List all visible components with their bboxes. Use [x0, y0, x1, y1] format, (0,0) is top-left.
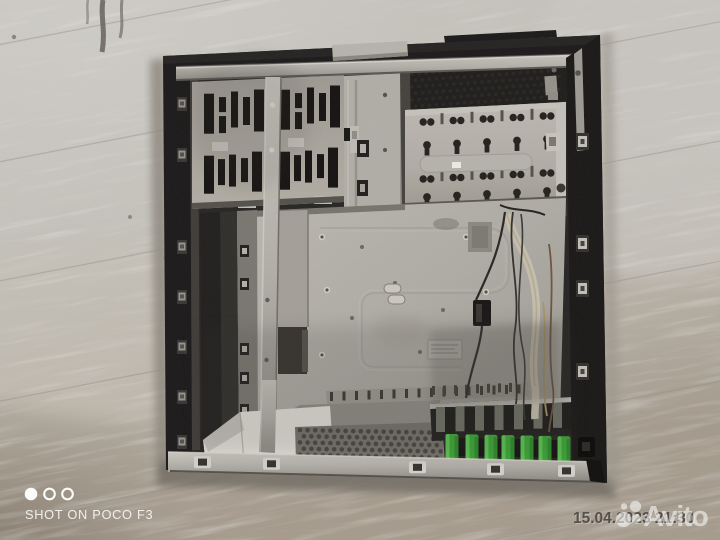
svg-text:SHOT ON POCO F3: SHOT ON POCO F3: [25, 507, 153, 522]
svg-text:Avito: Avito: [643, 501, 708, 533]
